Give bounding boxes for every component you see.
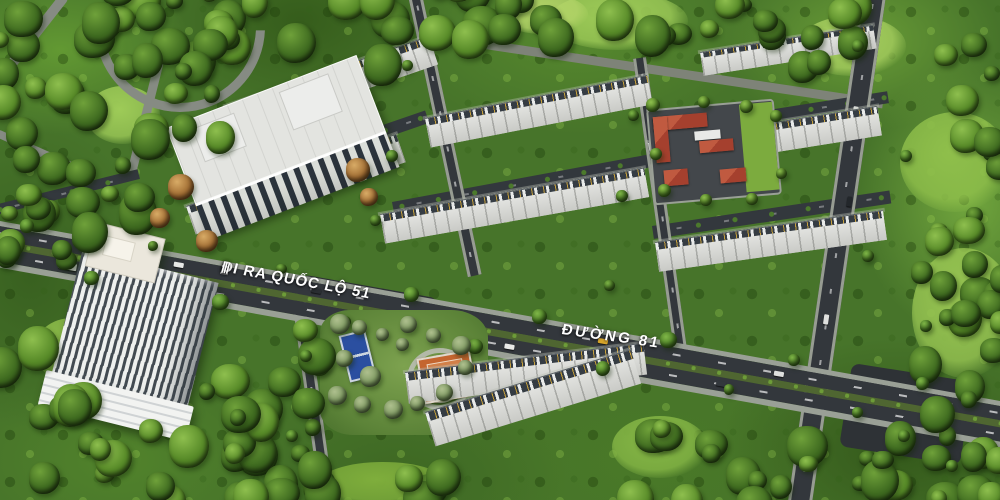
tree-canopy-blob: [426, 459, 461, 495]
tree-canopy-blob: [364, 44, 402, 87]
street-tree: [946, 460, 958, 472]
tree-canopy-blob: [986, 447, 1000, 474]
tree-canopy-blob: [298, 451, 331, 489]
tree-canopy-blob: [974, 127, 1000, 158]
street-tree: [404, 287, 419, 302]
street-tree: [84, 271, 99, 286]
tree-canopy-blob: [635, 15, 671, 56]
tree-canopy-blob: [653, 420, 671, 438]
car: [823, 314, 829, 325]
street-tree: [532, 309, 547, 324]
tree-canopy-blob: [225, 443, 245, 464]
street-tree: [852, 40, 864, 52]
street-tree: [370, 215, 381, 226]
street-tree: [596, 361, 610, 375]
autumn-tree: [196, 230, 218, 252]
street-tree: [898, 430, 910, 442]
tree-canopy-blob: [146, 472, 175, 500]
school-tree: [650, 148, 662, 160]
street-tree: [386, 150, 398, 162]
tree-canopy-blob: [951, 300, 981, 327]
tree-canopy-blob: [980, 338, 1000, 363]
street-tree: [616, 190, 628, 202]
tree-canopy-blob: [961, 33, 987, 57]
tree-canopy-blob: [6, 117, 38, 149]
street-tree: [402, 60, 413, 71]
tree-canopy-blob: [199, 383, 215, 400]
tree-canopy-blob: [978, 482, 1000, 500]
tree-canopy-blob: [169, 425, 209, 468]
street-tree: [862, 250, 874, 262]
school-tree: [700, 194, 712, 206]
tree-canopy-blob: [934, 44, 957, 66]
tree-canopy-blob: [986, 154, 1000, 180]
tree-canopy-blob: [277, 23, 316, 63]
tree-canopy-blob: [381, 16, 413, 45]
tree-canopy-blob: [139, 419, 163, 443]
school-red-roof-building: [720, 167, 747, 183]
street-tree: [900, 150, 912, 162]
park-tree: [336, 350, 353, 367]
school-tree: [776, 168, 787, 179]
school-tree: [746, 193, 758, 205]
tree-canopy-blob: [990, 311, 1000, 334]
street-tree: [920, 320, 932, 332]
tree-canopy-blob: [702, 444, 720, 463]
tree-canopy-blob: [29, 462, 60, 494]
street-tree: [212, 294, 229, 311]
tree-canopy-blob: [72, 212, 108, 253]
school-tree: [646, 98, 660, 112]
tree-canopy-blob: [931, 490, 946, 500]
tree-canopy-blob: [807, 50, 831, 75]
tree-canopy-blob: [13, 146, 40, 173]
tree-canopy-blob: [984, 66, 1000, 81]
tree-canopy-blob: [596, 0, 634, 41]
street-tree: [628, 110, 639, 121]
tree-canopy-blob: [828, 0, 861, 29]
tree-canopy-blob: [799, 456, 817, 472]
car: [504, 343, 515, 350]
park-tree: [354, 396, 371, 413]
car: [774, 371, 785, 378]
tree-canopy-blob: [395, 465, 422, 492]
tree-canopy-blob: [990, 265, 1000, 293]
street-tree: [916, 377, 929, 390]
tree-canopy-blob: [961, 442, 987, 472]
tree-canopy-blob: [292, 388, 325, 419]
park-tree: [436, 384, 453, 401]
street-tree: [300, 350, 312, 362]
school-tree: [770, 110, 782, 122]
tree-canopy-blob: [25, 77, 47, 99]
tree-canopy-blob: [946, 85, 979, 116]
street-tree: [788, 354, 800, 366]
car: [846, 196, 852, 207]
tree-canopy-blob: [770, 475, 792, 499]
aerial-render-stage: ||| ĐI RA QUỐC LỘ 51 ||| ĐƯỜNG 81: [0, 0, 1000, 500]
street-tree: [660, 332, 677, 349]
street-tree: [604, 280, 615, 291]
tree-canopy-blob: [16, 184, 42, 206]
tree-canopy-blob: [172, 114, 197, 142]
park-tree: [400, 316, 417, 333]
school-tree: [698, 96, 710, 108]
street-tree: [286, 430, 298, 442]
tree-canopy-blob: [962, 251, 988, 278]
